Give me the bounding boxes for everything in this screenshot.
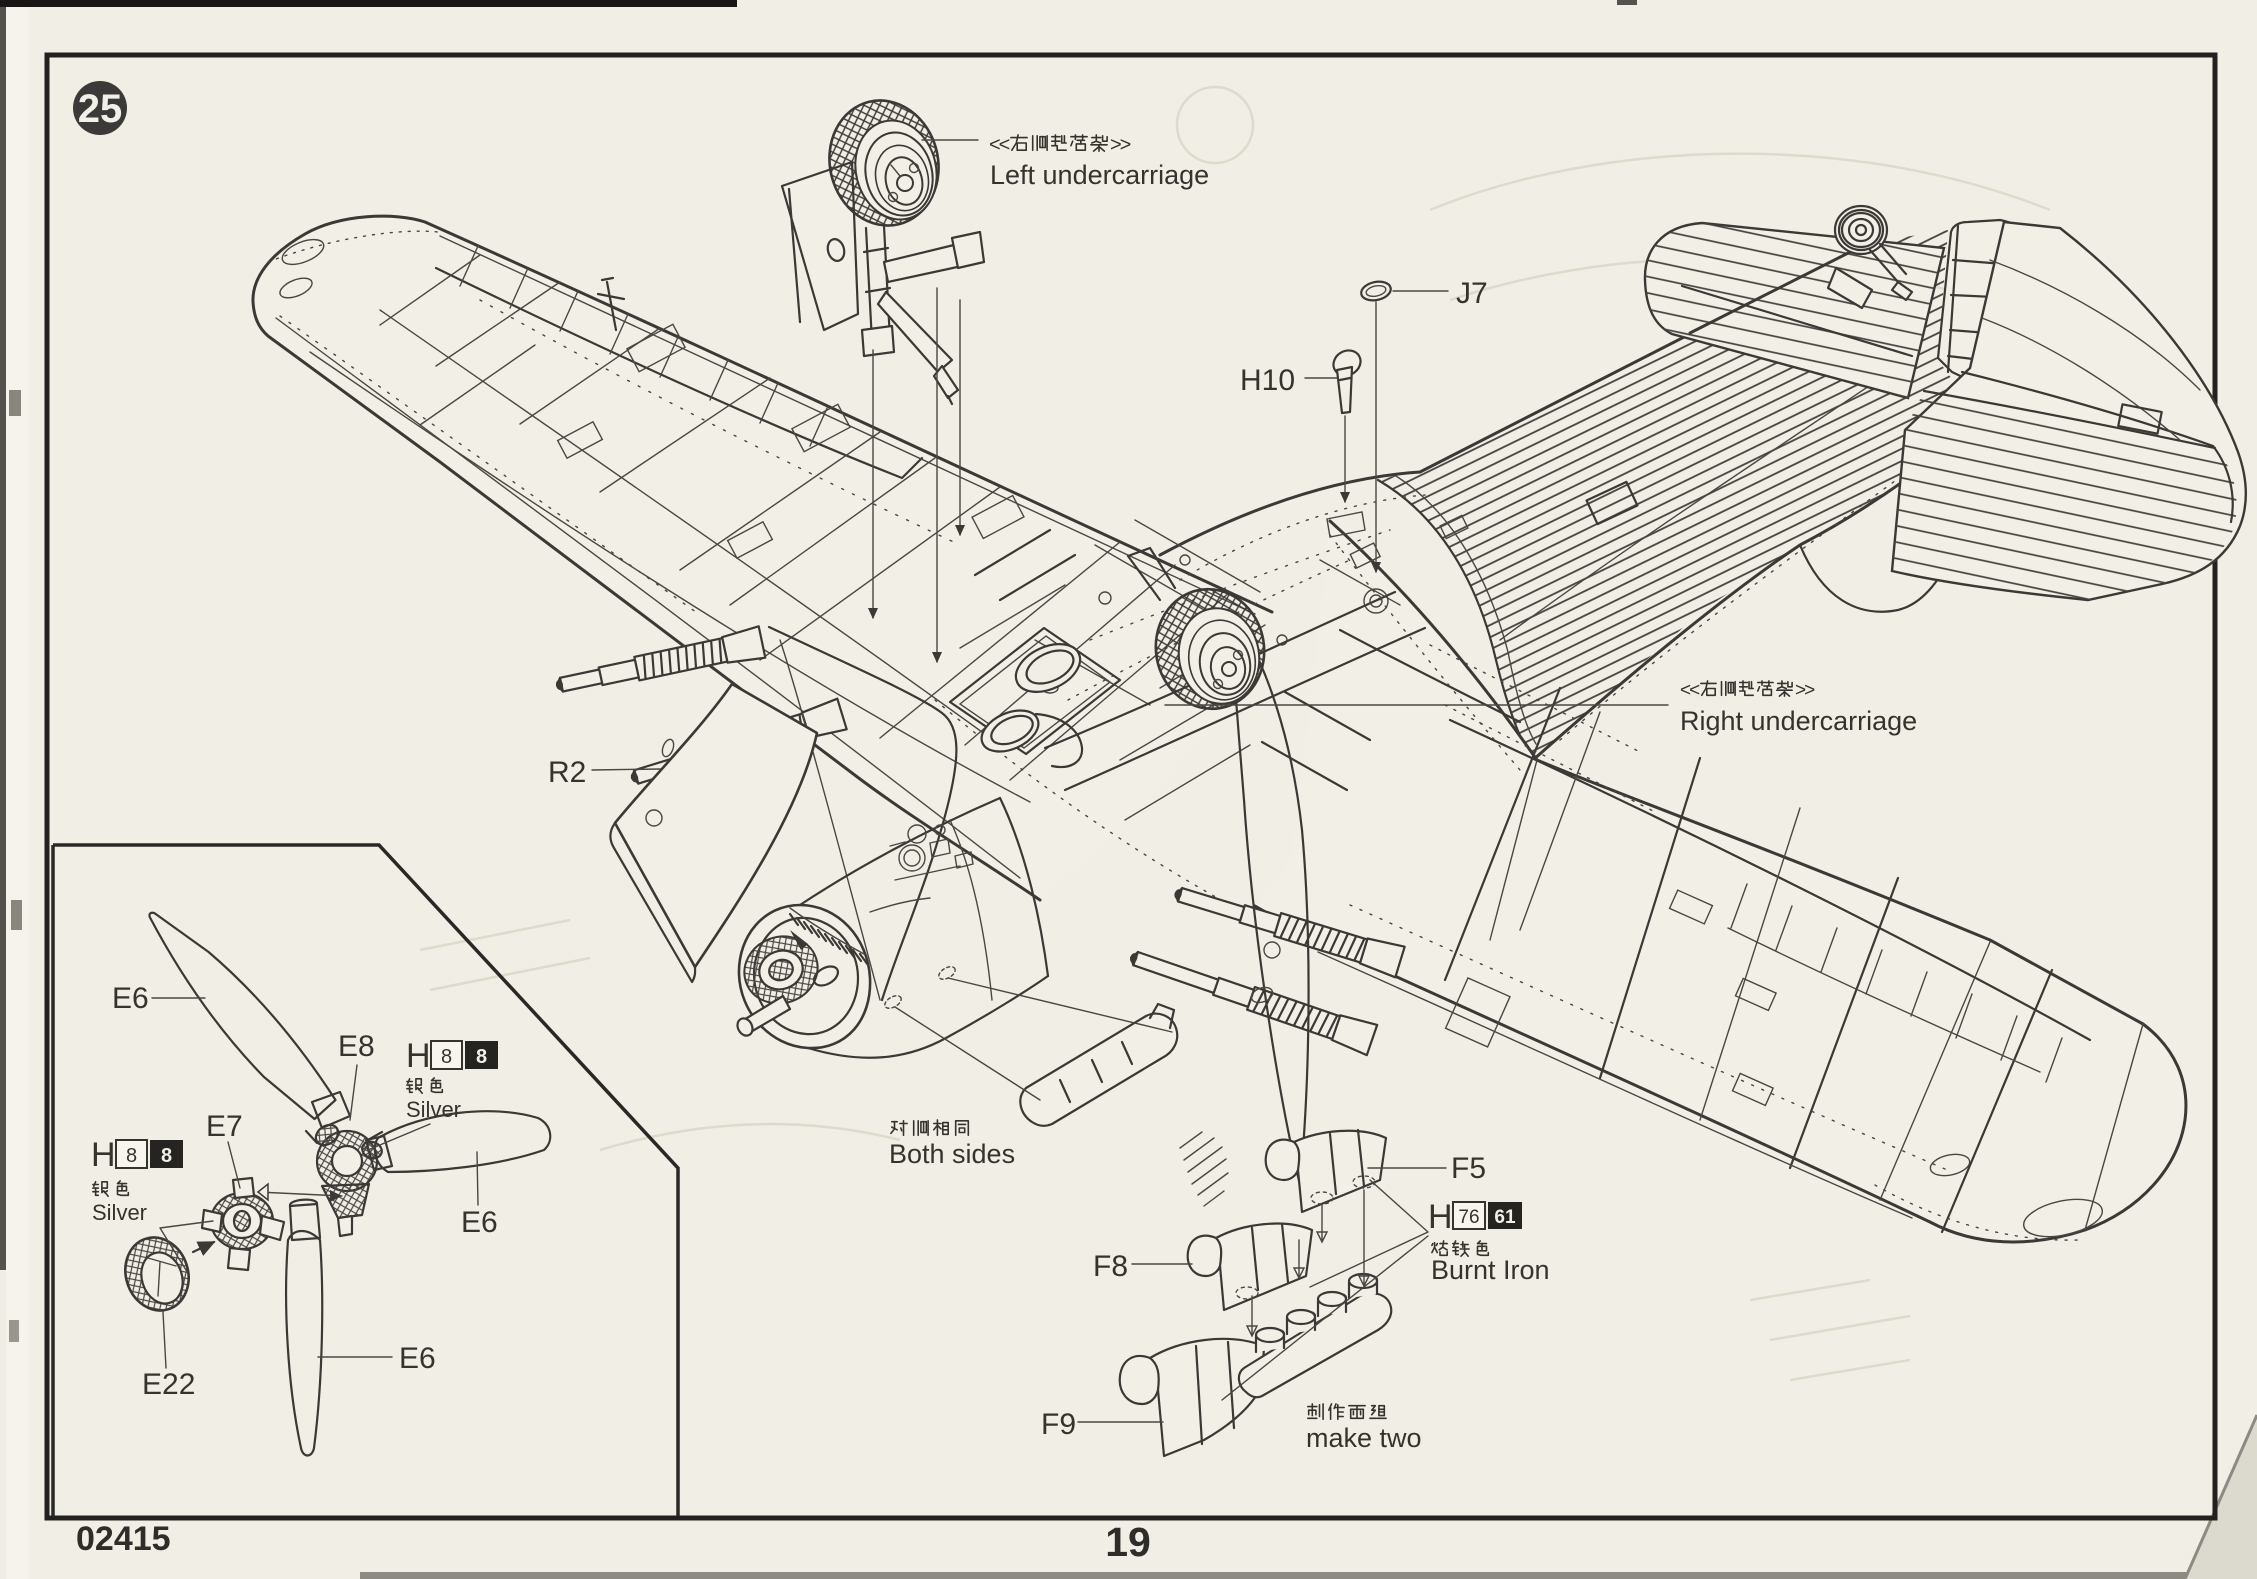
svg-text:76: 76 xyxy=(1458,1207,1479,1228)
svg-text:8: 8 xyxy=(126,1145,137,1167)
svg-text:E6: E6 xyxy=(461,1206,498,1239)
svg-text:Right undercarriage: Right undercarriage xyxy=(1680,706,1917,736)
svg-text:>>: >> xyxy=(1110,134,1131,156)
svg-text:Both sides: Both sides xyxy=(889,1139,1015,1169)
svg-text:Left undercarriage: Left undercarriage xyxy=(990,160,1209,190)
svg-text:H10: H10 xyxy=(1240,364,1295,397)
svg-text:02415: 02415 xyxy=(76,1520,171,1558)
svg-text:E8: E8 xyxy=(338,1030,375,1063)
svg-text:F9: F9 xyxy=(1041,1408,1076,1441)
svg-text:E6: E6 xyxy=(112,982,149,1015)
svg-text:8: 8 xyxy=(476,1046,487,1068)
svg-text:F5: F5 xyxy=(1451,1152,1486,1185)
svg-text:61: 61 xyxy=(1494,1207,1516,1228)
svg-text:E6: E6 xyxy=(399,1342,436,1375)
svg-text:<<: << xyxy=(989,134,1010,156)
svg-text:H: H xyxy=(1428,1198,1453,1236)
svg-text:R2: R2 xyxy=(548,756,586,789)
svg-text:19: 19 xyxy=(1105,1519,1151,1565)
svg-text:F8: F8 xyxy=(1093,1250,1128,1283)
svg-text:>>: >> xyxy=(1795,680,1815,701)
svg-text:8: 8 xyxy=(441,1046,452,1068)
svg-text:Silver: Silver xyxy=(92,1200,147,1225)
svg-text:H: H xyxy=(91,1136,116,1174)
svg-text:25: 25 xyxy=(78,87,123,131)
svg-text:E22: E22 xyxy=(142,1368,195,1401)
svg-text:make two: make two xyxy=(1306,1423,1422,1453)
svg-text:<<: << xyxy=(1680,680,1700,701)
svg-text:E7: E7 xyxy=(206,1110,243,1143)
svg-text:8: 8 xyxy=(161,1145,172,1167)
svg-text:H: H xyxy=(406,1037,431,1075)
svg-text:Silver: Silver xyxy=(406,1097,461,1122)
svg-text:J7: J7 xyxy=(1456,277,1488,310)
svg-text:Burnt Iron: Burnt Iron xyxy=(1431,1255,1550,1285)
